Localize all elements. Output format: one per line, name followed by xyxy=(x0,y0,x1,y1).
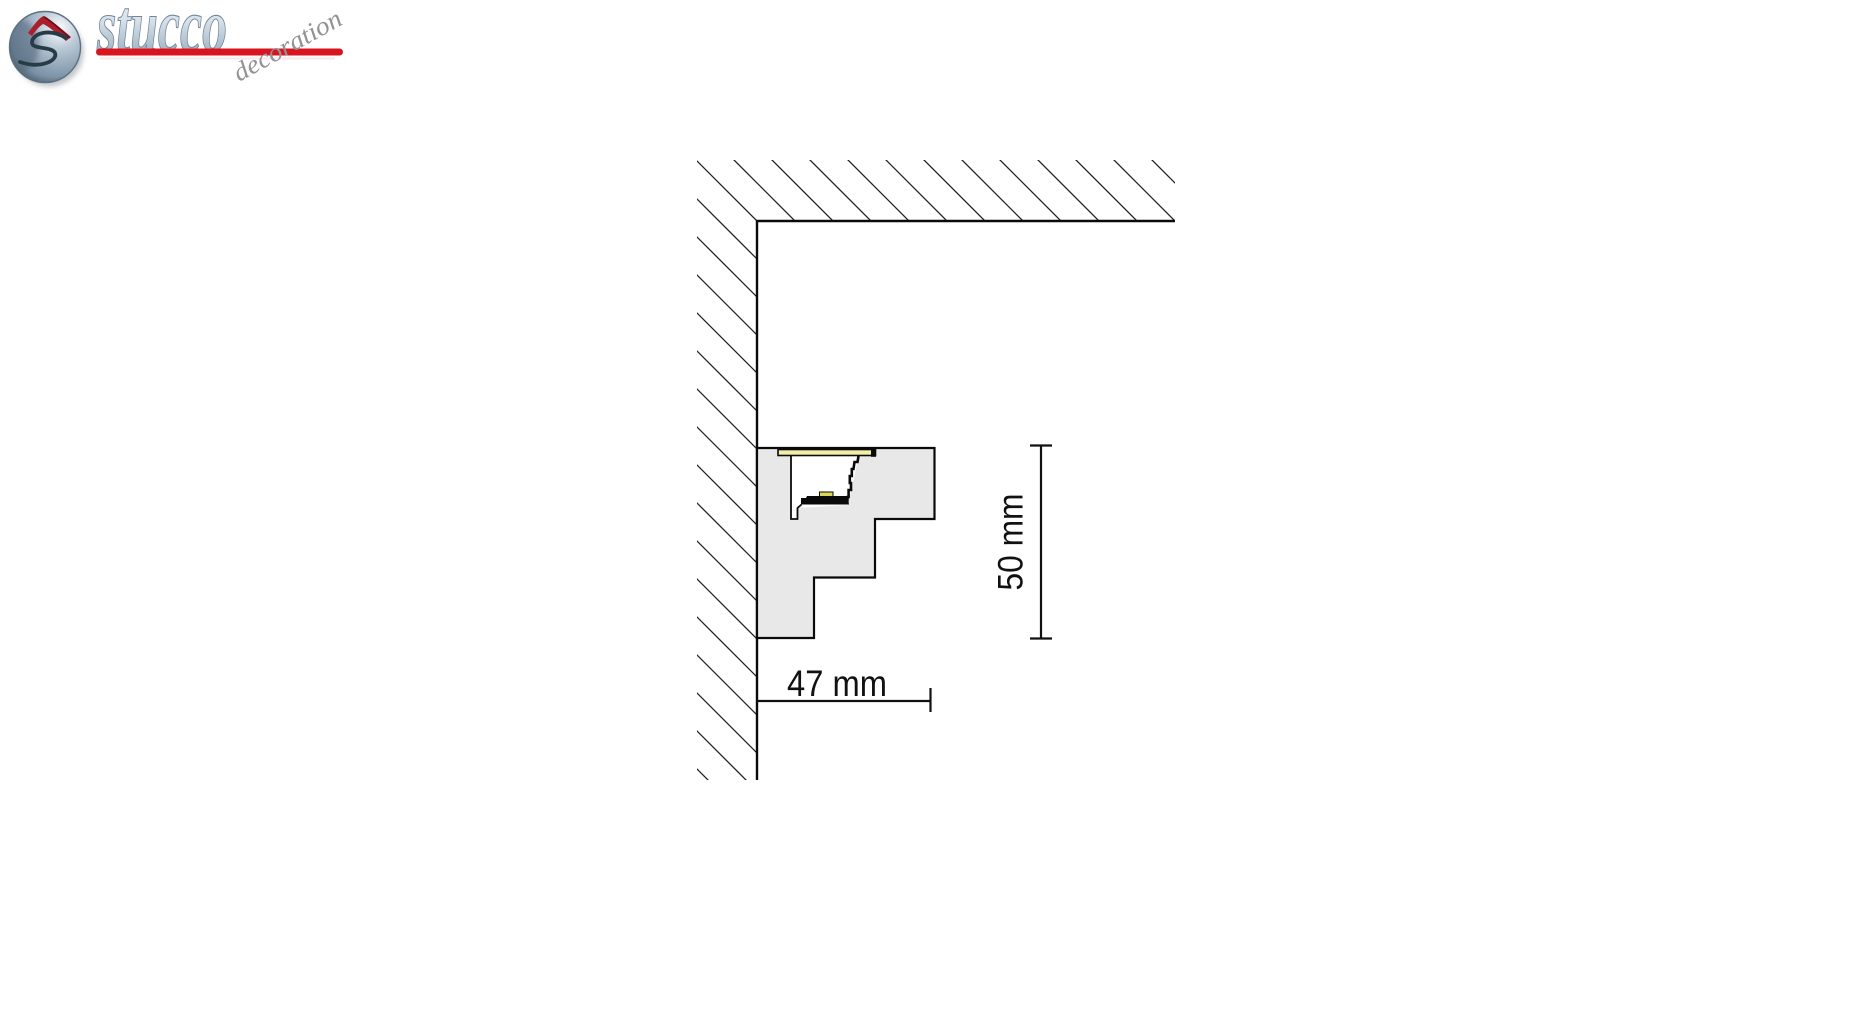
svg-text:decoration: decoration xyxy=(228,4,347,88)
svg-text:47 mm: 47 mm xyxy=(787,663,887,704)
svg-text:50 mm: 50 mm xyxy=(992,494,1031,591)
